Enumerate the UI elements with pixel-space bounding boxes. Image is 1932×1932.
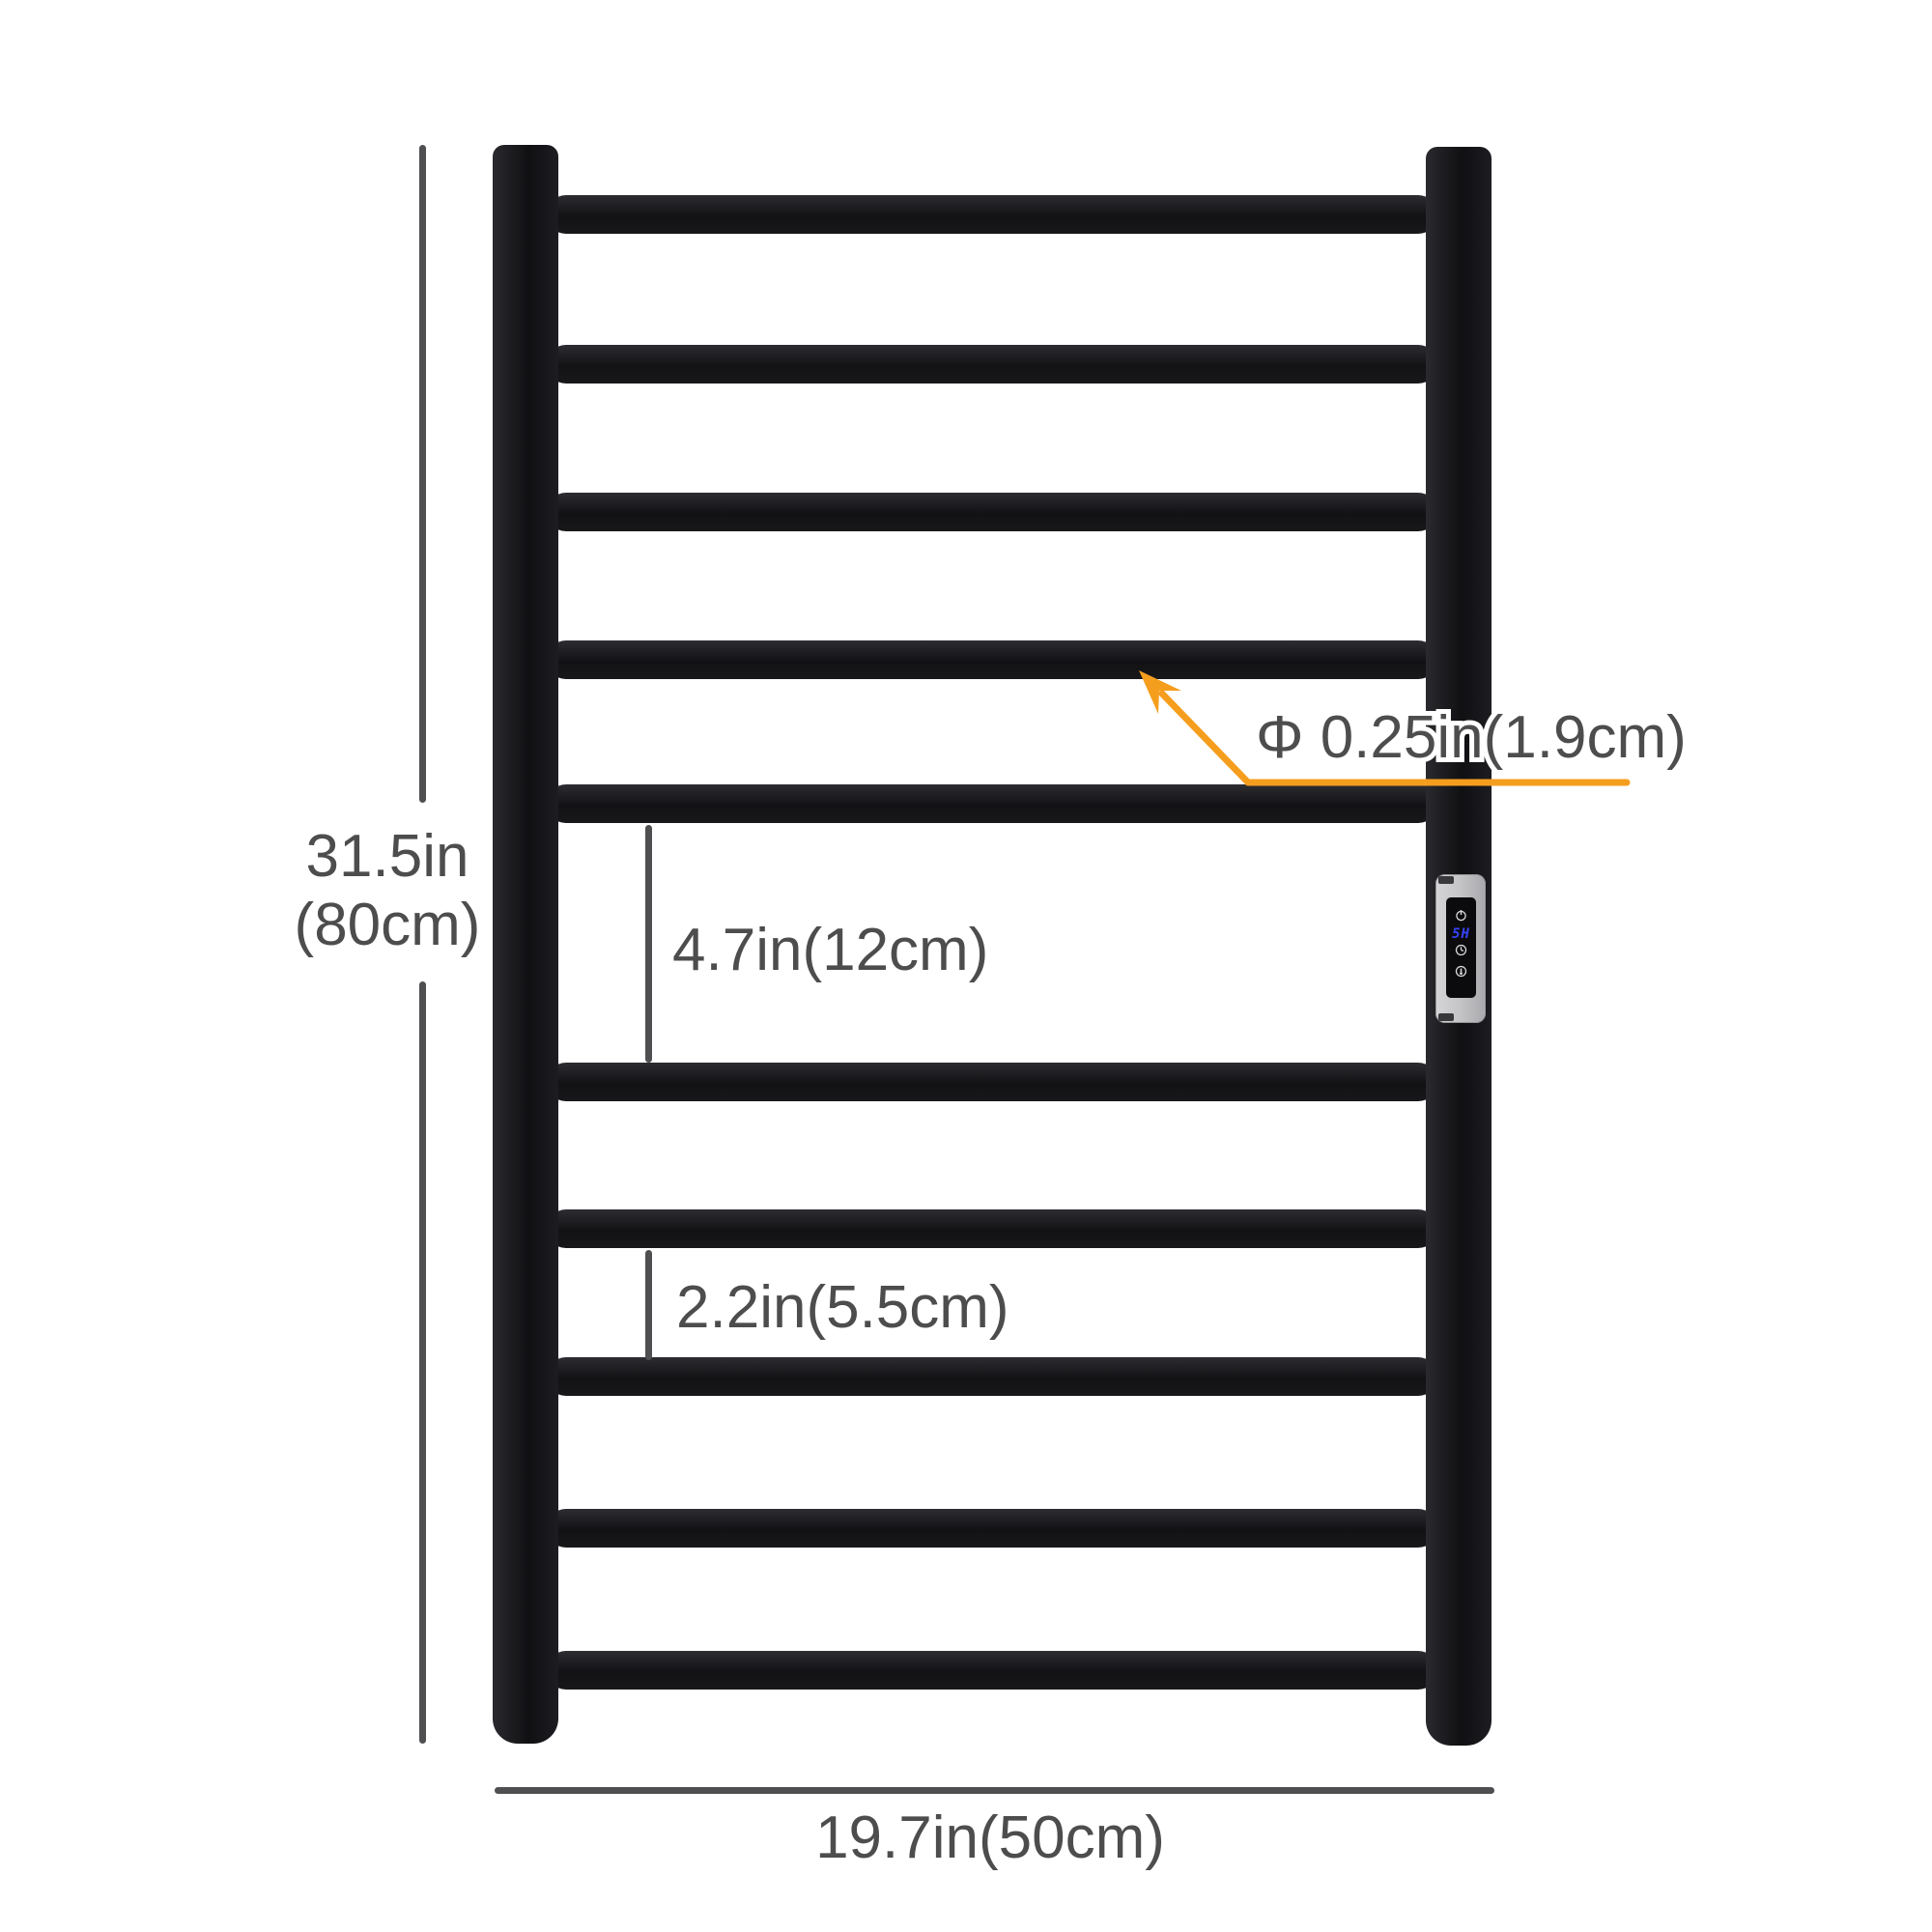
power-icon	[1455, 909, 1467, 922]
heat-icon	[1455, 965, 1467, 978]
width-dimension-line	[495, 1787, 1494, 1794]
control-screen: 5H	[1446, 897, 1476, 998]
towel-bar	[547, 493, 1437, 531]
width-label: 19.7in(50cm)	[749, 1804, 1232, 1872]
height-dimension-line-upper	[419, 145, 426, 803]
height-label-cm: (80cm)	[257, 891, 518, 959]
control-panel: 5H	[1435, 874, 1486, 1023]
wide-gap-label: 4.7in(12cm)	[672, 916, 988, 984]
towel-rail-dimension-diagram: 31.5in (80cm) 19.7in(50cm) 4.7in(12cm) 2…	[0, 0, 1932, 1932]
towel-bar	[547, 345, 1437, 384]
towel-bar	[547, 1651, 1437, 1690]
clock-icon	[1455, 944, 1467, 956]
towel-bar	[547, 1357, 1437, 1396]
narrow-gap-tick-line	[645, 1250, 652, 1360]
wide-gap-tick-line	[645, 825, 652, 1063]
height-label-inches: 31.5in	[257, 822, 518, 891]
panel-clip-top	[1438, 876, 1454, 884]
towel-bar	[547, 1063, 1437, 1101]
height-label: 31.5in (80cm)	[257, 822, 518, 959]
height-dimension-line-lower	[419, 981, 426, 1744]
panel-clip-bottom	[1438, 1013, 1454, 1021]
towel-bar	[547, 1509, 1437, 1548]
diameter-arrow	[1101, 647, 1642, 802]
timer-display: 5H	[1446, 926, 1476, 942]
towel-bar	[547, 195, 1437, 234]
towel-bar	[547, 1209, 1437, 1248]
narrow-gap-label: 2.2in(5.5cm)	[676, 1273, 1009, 1342]
